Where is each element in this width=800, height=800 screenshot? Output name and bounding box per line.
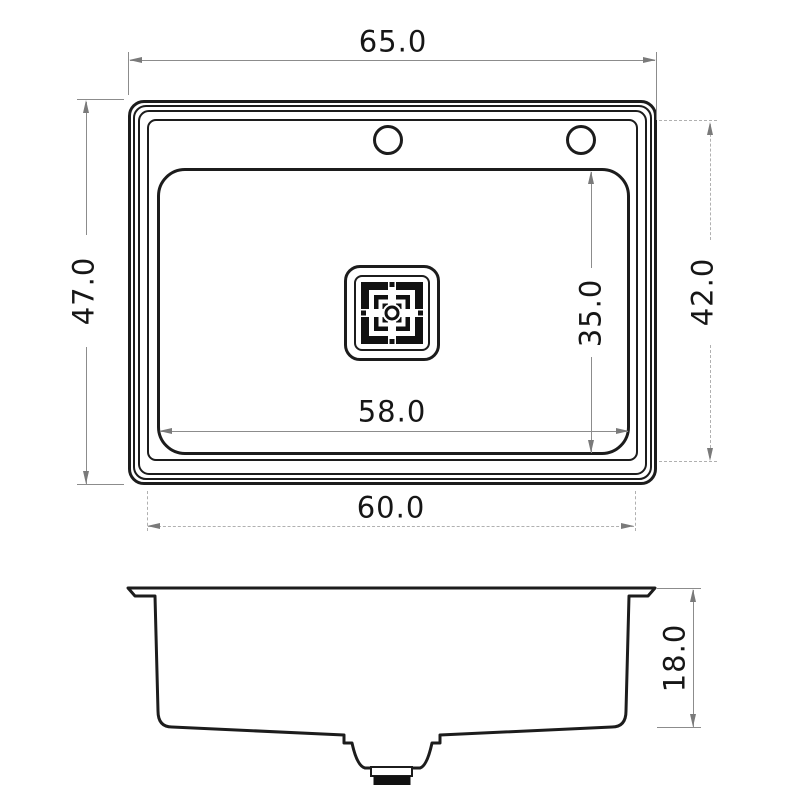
bowl-width-label: 58.0	[358, 398, 427, 427]
arrowhead-icon	[159, 428, 172, 434]
arrowhead-icon	[83, 100, 89, 113]
arrowhead-icon	[129, 57, 142, 63]
overall-width-label: 65.0	[359, 28, 428, 57]
side-height-label: 18.0	[661, 624, 690, 693]
extension-line-dashed	[659, 120, 717, 121]
dimension-line-rim-width	[148, 526, 634, 527]
drain-grate-icon	[361, 282, 423, 344]
side-profile-outline	[128, 588, 655, 768]
faucet-hole-right	[566, 125, 596, 155]
arrowhead-icon	[690, 714, 696, 727]
arrowhead-icon	[621, 523, 634, 529]
arrowhead-icon	[588, 440, 594, 453]
dimension-line-bowl-width	[160, 431, 628, 432]
extension-line-dashed	[659, 461, 717, 462]
dimension-line-overall-width	[130, 60, 655, 61]
extension-line	[656, 52, 657, 120]
dimension-line-side-height	[693, 590, 694, 727]
sink-dimension-drawing: 65.0 47.0 58.0 35.0 60.0 42.0 18.0	[0, 0, 800, 800]
rim-depth-label: 42.0	[689, 258, 718, 327]
drain-outlet-collar	[371, 767, 412, 776]
extension-line-dashed	[635, 491, 636, 531]
dimension-line-bowl-depth	[591, 357, 592, 453]
arrowhead-icon	[147, 523, 160, 529]
rim-width-label: 60.0	[357, 494, 426, 523]
faucet-hole-left	[373, 125, 403, 155]
drain-outlet-fitting	[374, 776, 411, 785]
drain-assembly	[344, 265, 440, 361]
extension-line	[657, 727, 701, 728]
dimension-line-rim-depth	[710, 345, 711, 458]
dimension-line-rim-depth	[710, 124, 711, 240]
arrowhead-icon	[588, 171, 594, 184]
arrowhead-icon	[690, 589, 696, 602]
extension-line	[77, 484, 124, 485]
overall-depth-label: 47.0	[70, 257, 99, 326]
bowl-depth-label: 35.0	[577, 279, 606, 348]
arrowhead-icon	[707, 448, 713, 461]
dimension-line-bowl-depth	[591, 172, 592, 268]
arrowhead-icon	[616, 428, 629, 434]
dimension-line-overall-depth	[86, 347, 87, 484]
arrowhead-icon	[83, 471, 89, 484]
arrowhead-icon	[707, 122, 713, 135]
arrowhead-icon	[643, 57, 656, 63]
dimension-line-overall-depth	[86, 102, 87, 235]
